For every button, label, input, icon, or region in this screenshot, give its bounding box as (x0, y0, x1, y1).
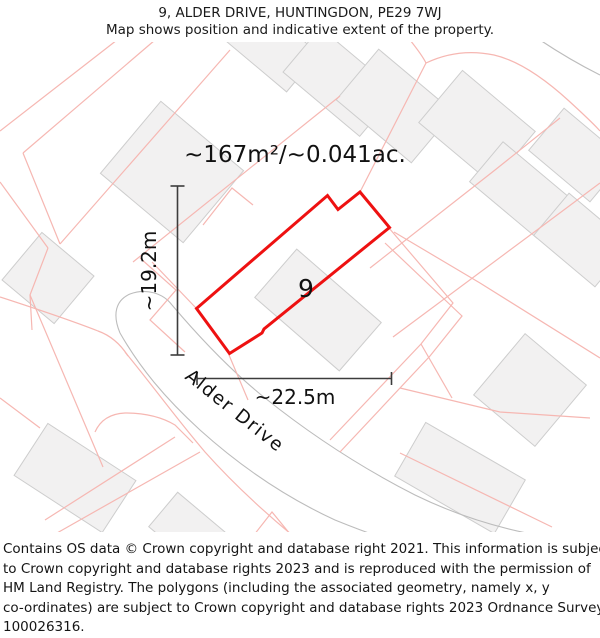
parcel-line (0, 182, 48, 248)
copyright-line: to Crown copyright and database rights 2… (0, 560, 600, 580)
building (14, 423, 136, 532)
parcel-line (23, 153, 60, 244)
page-title: 9, ALDER DRIVE, HUNTINGDON, PE29 7WJ (0, 0, 600, 22)
plot-number-label: 9 (298, 274, 314, 303)
parcel-line (229, 355, 248, 400)
building (100, 101, 243, 242)
page-subtitle: Map shows position and indicative extent… (0, 22, 600, 39)
property-map-page: ~19.2m ~22.5m ~167m²/~0.041ac. 9 Alder D… (0, 0, 600, 625)
parcel-line (421, 344, 452, 398)
copyright-line: co-ordinates) are subject to Crown copyr… (0, 599, 600, 619)
dimension-horizontal-label: ~22.5m (255, 385, 336, 409)
road-edge-top-right (540, 40, 600, 75)
building (2, 232, 94, 323)
building (474, 334, 587, 447)
area-label: ~167m²/~0.041ac. (184, 142, 406, 168)
copyright-line: Contains OS data © Crown copyright and d… (0, 540, 600, 560)
dimension-vertical-label: ~19.2m (137, 231, 161, 312)
parcel-line (0, 398, 40, 428)
parcel-line (95, 413, 193, 443)
building (395, 422, 526, 533)
map-header: 9, ALDER DRIVE, HUNTINGDON, PE29 7WJ Map… (0, 0, 600, 42)
building-plot-9 (255, 249, 382, 371)
copyright-line: 100026316. (0, 618, 600, 638)
parcel-line (0, 40, 117, 131)
copyright-footer: Contains OS data © Crown copyright and d… (0, 532, 600, 625)
copyright-line: HM Land Registry. The polygons (includin… (0, 579, 600, 599)
